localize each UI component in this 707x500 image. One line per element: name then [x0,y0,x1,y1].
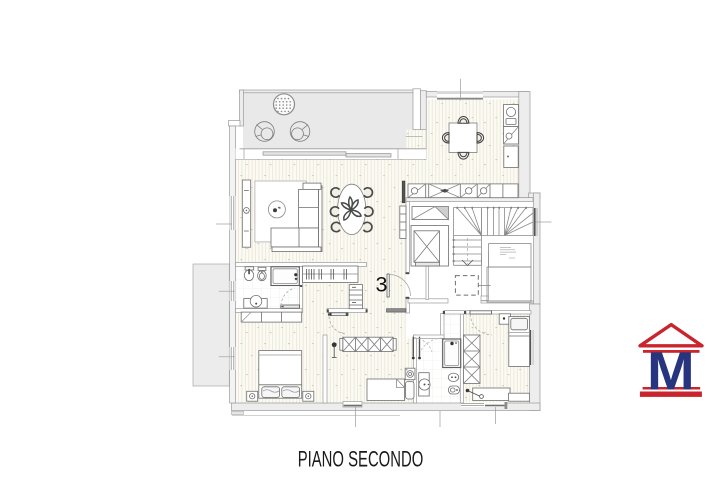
svg-text:3: 3 [376,273,388,297]
svg-text:PIANO SECONDO: PIANO SECONDO [298,447,424,472]
